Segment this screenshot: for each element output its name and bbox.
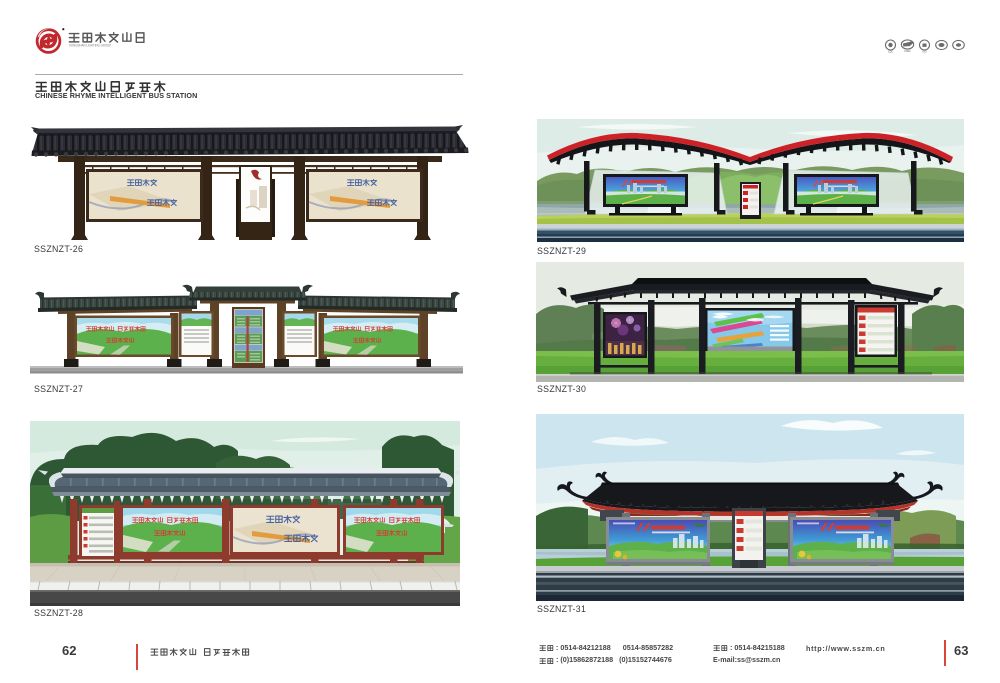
svg-text:CQC: CQC <box>888 51 894 53</box>
svg-text:CCEC: CCEC <box>904 50 911 53</box>
svg-text:ISO: ISO <box>922 51 926 53</box>
